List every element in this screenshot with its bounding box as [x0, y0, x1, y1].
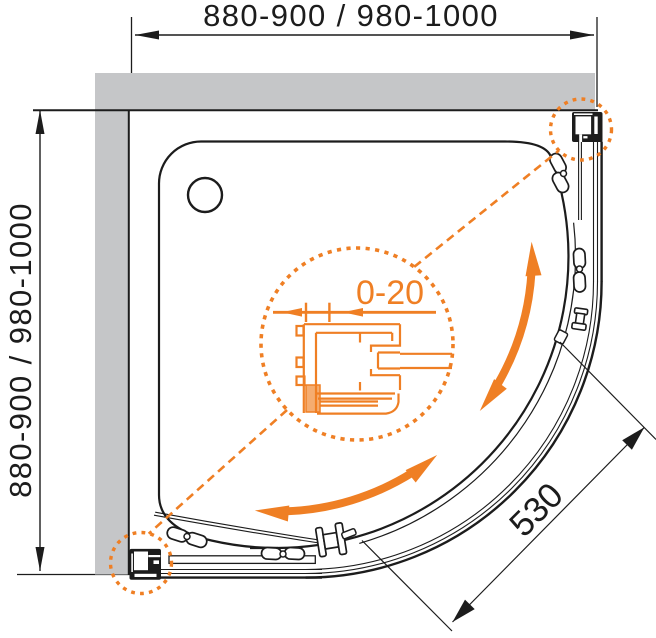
- svg-text:880-900 / 980-1000: 880-900 / 980-1000: [203, 0, 499, 33]
- svg-text:880-900 / 980-1000: 880-900 / 980-1000: [3, 202, 38, 498]
- svg-text:0-20: 0-20: [356, 274, 424, 312]
